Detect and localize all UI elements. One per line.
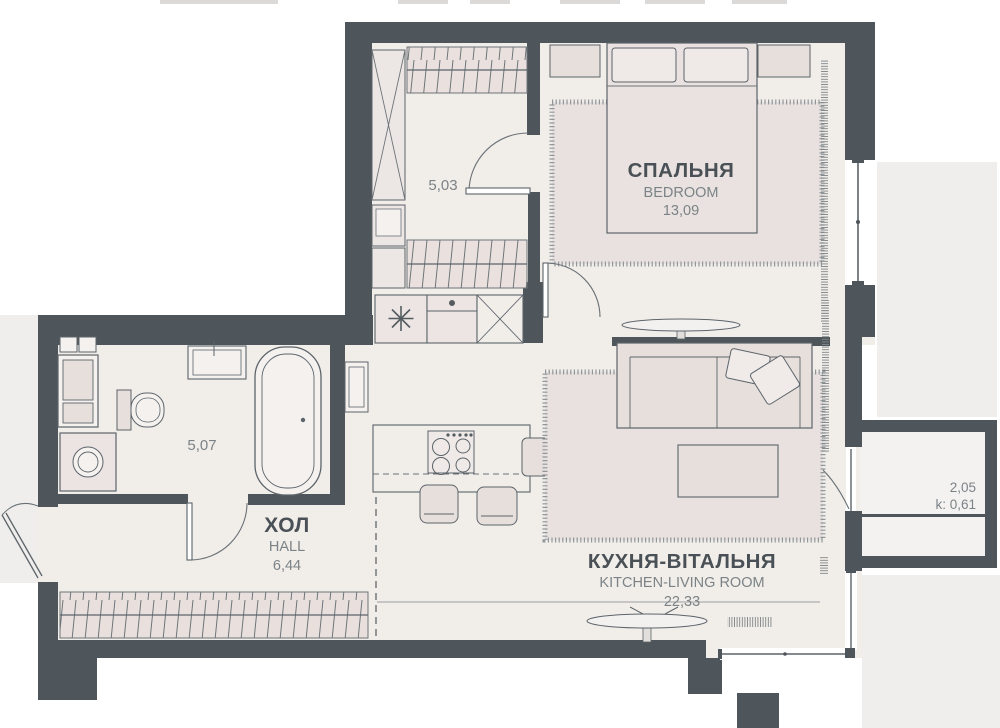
cooktop bbox=[428, 431, 474, 475]
pillow-left bbox=[612, 48, 676, 82]
wall-living-right-upper bbox=[845, 337, 862, 447]
balcony-wall-right bbox=[985, 420, 997, 568]
cropped-top-marks bbox=[160, 0, 787, 4]
bathtub bbox=[255, 347, 321, 495]
wall-wardrobe-right-upper bbox=[527, 43, 540, 135]
neighbor-area-bottom-right bbox=[862, 575, 1000, 728]
wall-living-right-lower bbox=[845, 511, 862, 571]
wall-bathroom-bottom-right bbox=[248, 494, 345, 505]
wall-left-upper bbox=[38, 315, 58, 507]
nightstand-left bbox=[550, 45, 600, 77]
bedroom-window bbox=[845, 159, 875, 285]
wall-kitchen-corner bbox=[523, 282, 543, 343]
washbasin bbox=[188, 341, 246, 379]
hall-radiator-cabinet bbox=[345, 362, 368, 412]
corner-window-vertical bbox=[845, 569, 857, 650]
kitchen-cabinet-row bbox=[375, 295, 523, 343]
kitchen-living-area: 22,33 bbox=[664, 594, 700, 610]
wall-bathroom-right bbox=[330, 345, 345, 505]
kitchen-living-name-uk: КУХНЯ-ВІТАЛЬНЯ bbox=[588, 550, 776, 573]
hall-wardrobe bbox=[60, 592, 368, 638]
bedroom-name-en: BEDROOM bbox=[644, 185, 719, 201]
bedroom-name-uk: СПАЛЬНЯ bbox=[628, 159, 735, 182]
balcony-coefficient: k: 0,61 bbox=[935, 497, 976, 512]
wall-bedroom-right-upper bbox=[845, 22, 875, 162]
hall-area: 6,44 bbox=[273, 558, 301, 574]
balcony-wall-top bbox=[860, 420, 997, 432]
shelf-unit bbox=[58, 355, 98, 427]
drawer-unit bbox=[372, 205, 405, 288]
toilet bbox=[117, 390, 164, 430]
bathroom-area: 5,07 bbox=[187, 437, 216, 454]
nightstand-right bbox=[758, 45, 810, 77]
sofa bbox=[617, 343, 812, 428]
mirror-cabinet bbox=[372, 50, 405, 200]
wall-bottom bbox=[58, 640, 706, 658]
kitchen-island bbox=[373, 425, 530, 492]
living-curtain-bottom bbox=[727, 617, 772, 627]
wall-pillar-bottom bbox=[737, 693, 779, 728]
bedroom-area: 13,09 bbox=[663, 203, 699, 219]
wall-top bbox=[345, 22, 875, 43]
bedroom-curtain bbox=[821, 60, 828, 322]
balcony-divider bbox=[860, 514, 985, 517]
hall-name-uk: ХОЛ bbox=[264, 514, 310, 537]
wardrobe-rail-bottom bbox=[407, 240, 527, 288]
hall-name-en: HALL bbox=[269, 539, 305, 555]
washing-machine bbox=[60, 433, 116, 491]
kitchen-living-name-en: KITCHEN-LIVING ROOM bbox=[599, 575, 764, 591]
corner-window-horizontal bbox=[718, 648, 855, 660]
wall-upper-left bbox=[345, 22, 372, 345]
living-curtain-right bbox=[822, 300, 829, 453]
floor-plan-page: 2,05 k: 0,61 5,03 bbox=[0, 0, 1000, 728]
wardrobe-rail-top bbox=[407, 47, 527, 93]
wall-left-lower bbox=[38, 582, 58, 700]
balcony-wall-bottom bbox=[860, 556, 997, 568]
coffee-table bbox=[678, 445, 778, 497]
wall-bedroom-right-lower bbox=[845, 283, 875, 337]
pillow-right bbox=[684, 48, 748, 82]
living-curtain-corner bbox=[820, 557, 828, 575]
wall-step-right bbox=[688, 658, 722, 694]
wall-step-left bbox=[58, 658, 97, 700]
wall-bathroom-bottom-left bbox=[58, 494, 188, 504]
floor-plan-svg: 2,05 k: 0,61 5,03 bbox=[0, 0, 1000, 728]
balcony-area: 2,05 bbox=[950, 480, 976, 495]
freezer-star-icon bbox=[389, 306, 414, 331]
sink-drain-icon bbox=[449, 300, 455, 306]
wardrobe-area: 5,03 bbox=[428, 177, 457, 194]
neighbor-area-right bbox=[877, 162, 997, 417]
wall-wardrobe-right-lower bbox=[528, 192, 540, 295]
neighbor-area-left bbox=[0, 315, 38, 583]
